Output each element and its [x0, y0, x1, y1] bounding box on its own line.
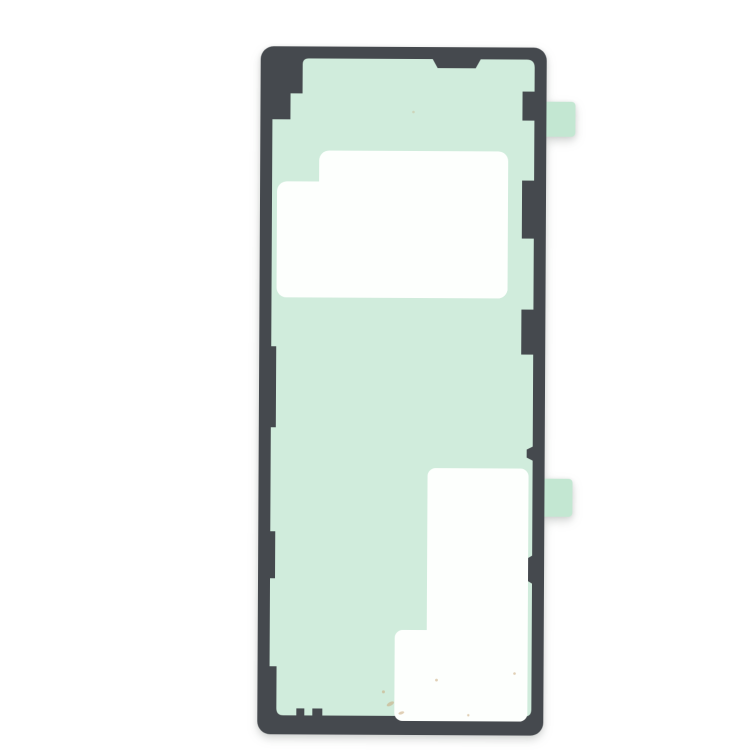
upper-cutout-extension	[276, 181, 508, 298]
stain-speck	[412, 111, 415, 114]
stain-speck	[435, 679, 438, 682]
stain-speck	[382, 690, 385, 693]
product-photo: Product photo of a smartphone back cover…	[40, 16, 750, 750]
lower-cutout-extension	[394, 630, 527, 722]
adhesive-sticker-photo	[40, 16, 750, 750]
adhesive-sticker	[257, 46, 576, 736]
stain-speck	[467, 714, 469, 716]
stain-speck	[513, 672, 516, 675]
